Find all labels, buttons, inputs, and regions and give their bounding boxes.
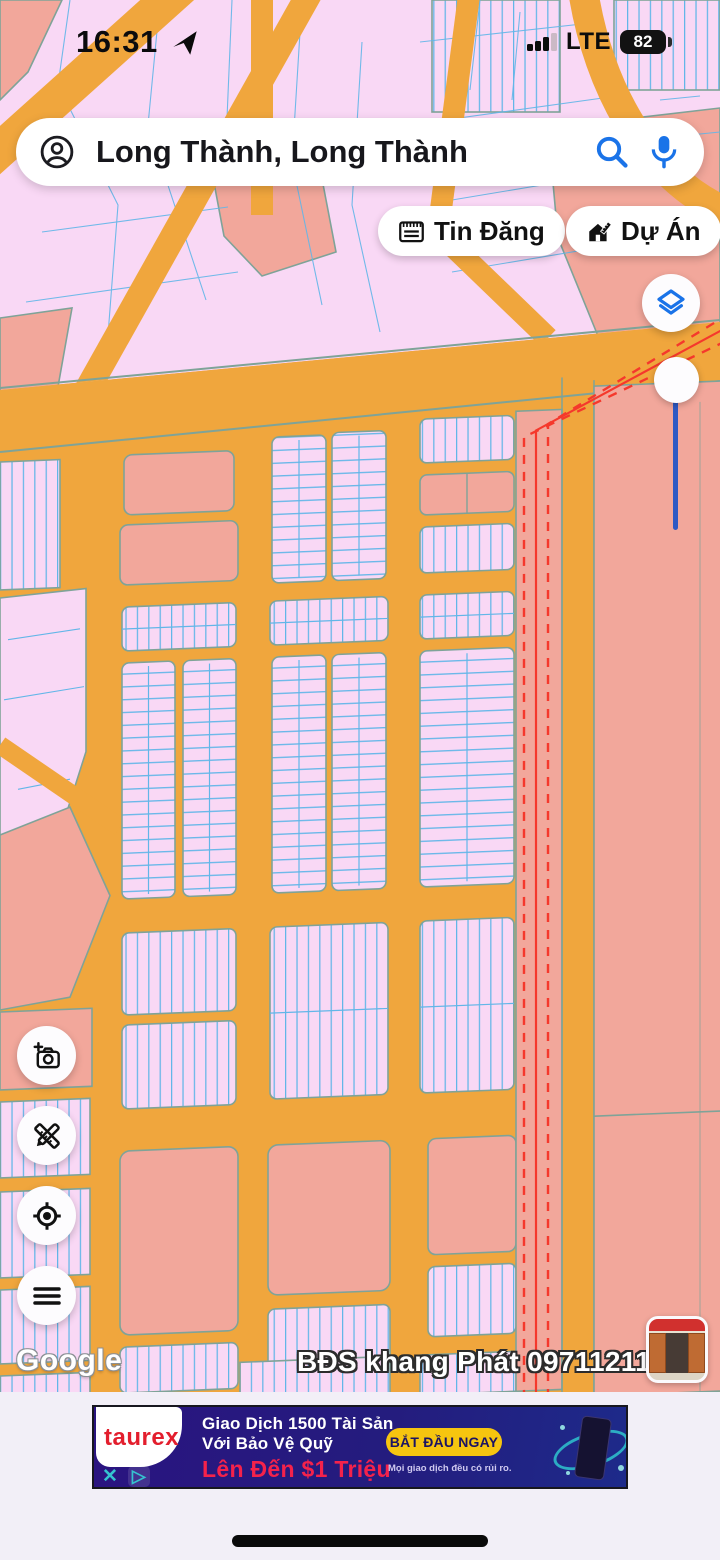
projects-chip-label: Dự Án [621, 216, 701, 247]
add-photo-button[interactable] [17, 1026, 76, 1085]
newspaper-icon [398, 219, 425, 244]
ad-banner[interactable]: taurex ✕ ▷ Giao Dịch 1500 Tài Sản Với Bả… [92, 1405, 628, 1489]
ad-phone-graphic [556, 1415, 626, 1485]
listings-chip[interactable]: Tin Đăng [378, 206, 565, 256]
thumb-door-left [649, 1333, 666, 1373]
ad-highlight: Lên Đến $1 Triệu [202, 1456, 393, 1483]
mic-icon[interactable] [648, 134, 680, 170]
search-bar[interactable]: Long Thành, Long Thành [16, 118, 704, 186]
thumb-door-right [688, 1333, 705, 1373]
ad-line2: Với Bảo Vệ Quỹ [202, 1434, 393, 1454]
thumb-interior [666, 1333, 688, 1373]
layers-icon [655, 288, 687, 318]
agent-watermark: BĐS khang Phát 0971121117 [297, 1346, 681, 1378]
app-screen: 16:31 LTE 82 Long Thành, Long Thành [0, 0, 720, 1560]
thumb-floor [649, 1373, 705, 1381]
zoom-slider-track[interactable] [673, 400, 678, 530]
search-input[interactable]: Long Thành, Long Thành [96, 134, 594, 170]
zoom-slider-knob[interactable] [654, 357, 699, 403]
layers-button[interactable] [642, 274, 700, 332]
property-photo-thumbnail[interactable] [646, 1316, 708, 1383]
google-watermark: Google [16, 1344, 122, 1378]
adchoices-icon[interactable]: ▷ [128, 1466, 150, 1487]
house-ruler-icon [586, 219, 612, 244]
camera-plus-icon [32, 1042, 62, 1069]
thumb-banner [649, 1319, 705, 1333]
crosshair-icon [32, 1201, 62, 1231]
projects-chip[interactable]: Dự Án [566, 206, 720, 256]
ad-brand: taurex [104, 1424, 179, 1452]
ad-cta-button[interactable]: BẮT ĐẦU NGAY [386, 1428, 502, 1456]
person-circle-icon[interactable] [40, 135, 74, 169]
ad-close-icon[interactable]: ✕ [102, 1465, 118, 1488]
my-location-button[interactable] [17, 1186, 76, 1245]
home-indicator[interactable] [232, 1535, 488, 1547]
pencil-ruler-icon [32, 1121, 62, 1151]
magnifier-icon[interactable] [594, 134, 630, 170]
hamburger-icon [32, 1283, 62, 1309]
menu-button[interactable] [17, 1266, 76, 1325]
ad-line1: Giao Dịch 1500 Tài Sản [202, 1414, 393, 1434]
draw-measure-button[interactable] [17, 1106, 76, 1165]
listings-chip-label: Tin Đăng [434, 216, 545, 247]
ad-disclaimer: Mọi giao dịch đều có rủi ro. [388, 1463, 512, 1474]
